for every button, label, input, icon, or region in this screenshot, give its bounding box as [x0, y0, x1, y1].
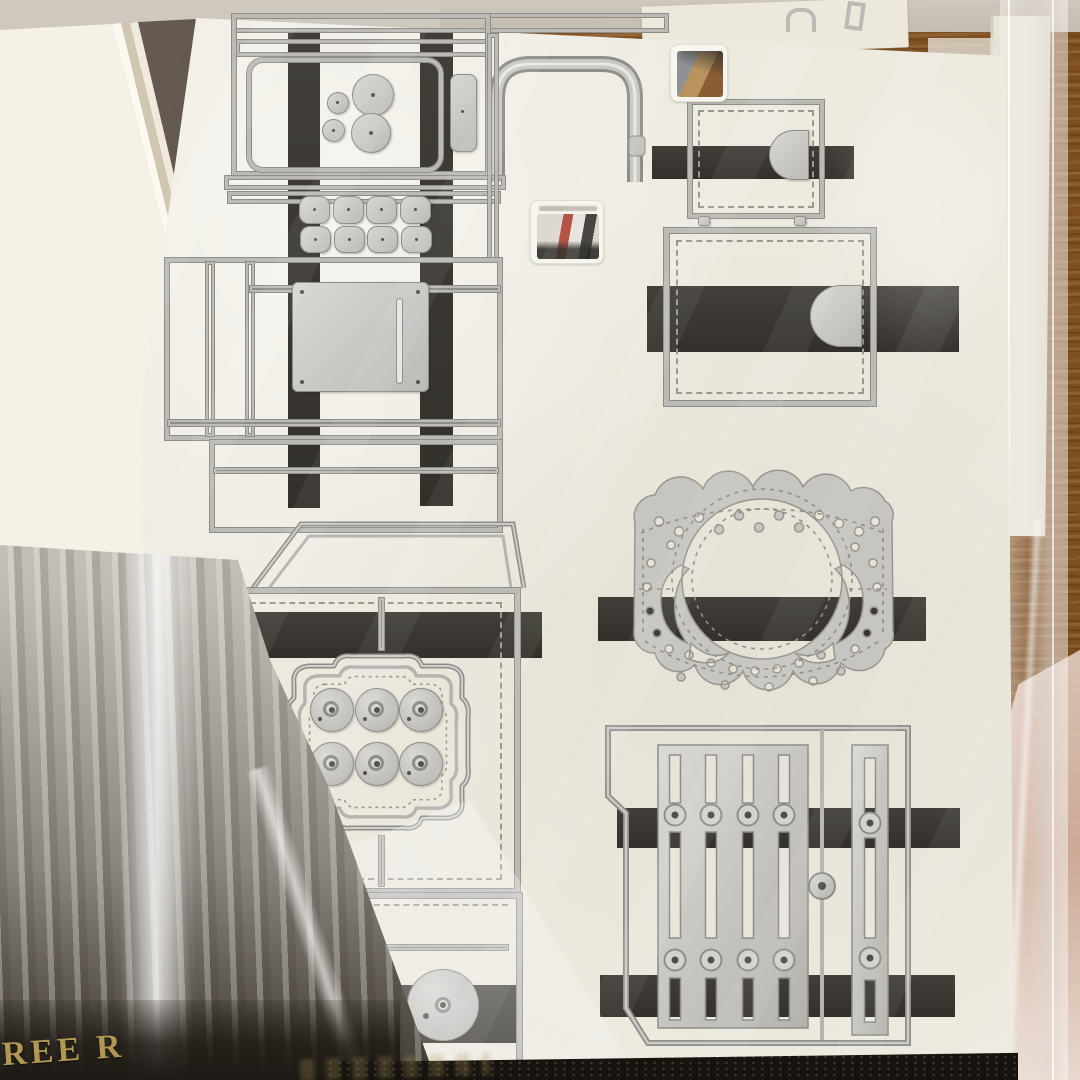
die-tab — [450, 74, 477, 152]
die-petal-8 — [401, 226, 432, 253]
label-connector-bottom — [379, 836, 384, 886]
sticker-2-photo — [537, 214, 599, 259]
die-pocket-large — [664, 228, 876, 406]
die-petal-5 — [300, 226, 331, 253]
die-box-rail-3 — [225, 176, 505, 189]
photo-scene: REE R — [0, 0, 1080, 1080]
die-box-fold-line-1 — [206, 262, 214, 436]
die-wheel-small-1 — [310, 688, 354, 732]
die-box-right-edge — [488, 34, 498, 262]
die-bit-top-2 — [844, 1, 866, 31]
die-plate-with-slot — [292, 282, 429, 392]
cellophane-highlight-band — [120, 540, 195, 1080]
die-wheel-small-6 — [399, 742, 443, 786]
pocket-connector-2 — [794, 216, 806, 226]
die-petal-1 — [299, 196, 330, 224]
die-circle-large-2 — [351, 113, 391, 153]
sleeve-seam-2 — [1052, 0, 1054, 1080]
sticker-1-photo — [677, 51, 723, 97]
die-wagon-lid — [245, 516, 530, 594]
pocket-connector-1 — [698, 216, 710, 226]
die-box-bottom-hline — [214, 468, 498, 473]
die-petal-4 — [400, 196, 431, 224]
die-wheel-big-2 — [407, 969, 479, 1041]
die-bag-handle — [483, 44, 649, 184]
die-pocket-small — [688, 100, 824, 218]
die-wheel-small-3 — [399, 688, 443, 732]
die-circle-small-2 — [322, 119, 345, 142]
die-wheel-small-5 — [355, 742, 399, 786]
die-petal-2 — [333, 196, 364, 224]
plate-slot — [396, 298, 403, 384]
die-petal-6 — [334, 226, 365, 253]
die-petal-7 — [367, 226, 398, 253]
die-box-hline-2 — [168, 420, 500, 426]
die-box-rail-4 — [228, 192, 500, 203]
product-photo-sticker-2 — [530, 200, 604, 264]
product-photo-sticker-1 — [670, 44, 728, 102]
die-scalloped-doily — [625, 437, 900, 713]
sticker-2-caption-line — [539, 206, 597, 211]
die-bit-top-1 — [786, 8, 816, 32]
die-circle-small-1 — [327, 92, 349, 114]
die-fence-gate — [600, 718, 945, 1063]
die-wheel-small-2 — [355, 688, 399, 732]
die-circle-large-1 — [352, 74, 394, 116]
die-bag-top-frame — [247, 58, 443, 172]
die-petal-3 — [366, 196, 397, 224]
